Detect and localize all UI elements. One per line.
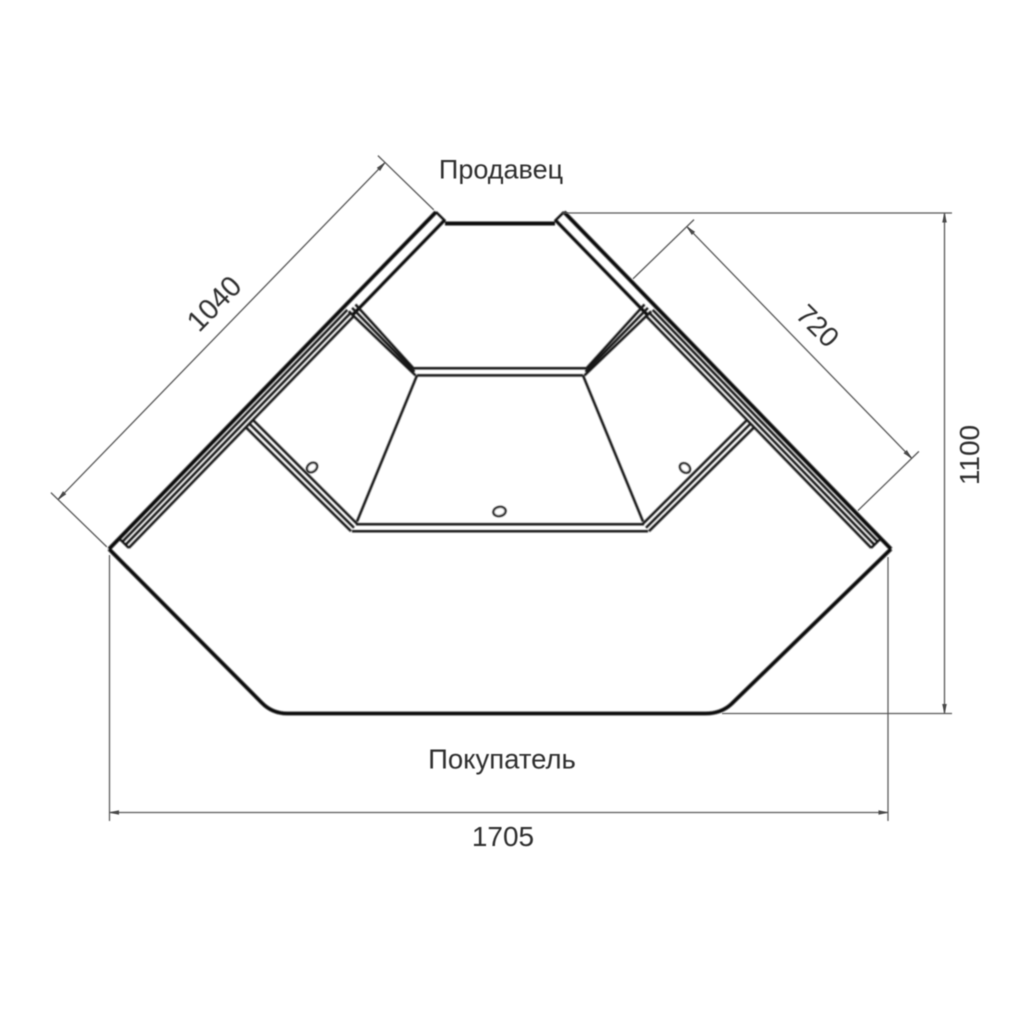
svg-text:1100: 1100 xyxy=(954,425,985,485)
svg-text:Покупатель: Покупатель xyxy=(428,744,576,775)
svg-text:1705: 1705 xyxy=(472,821,534,852)
svg-text:Продавец: Продавец xyxy=(439,155,563,185)
